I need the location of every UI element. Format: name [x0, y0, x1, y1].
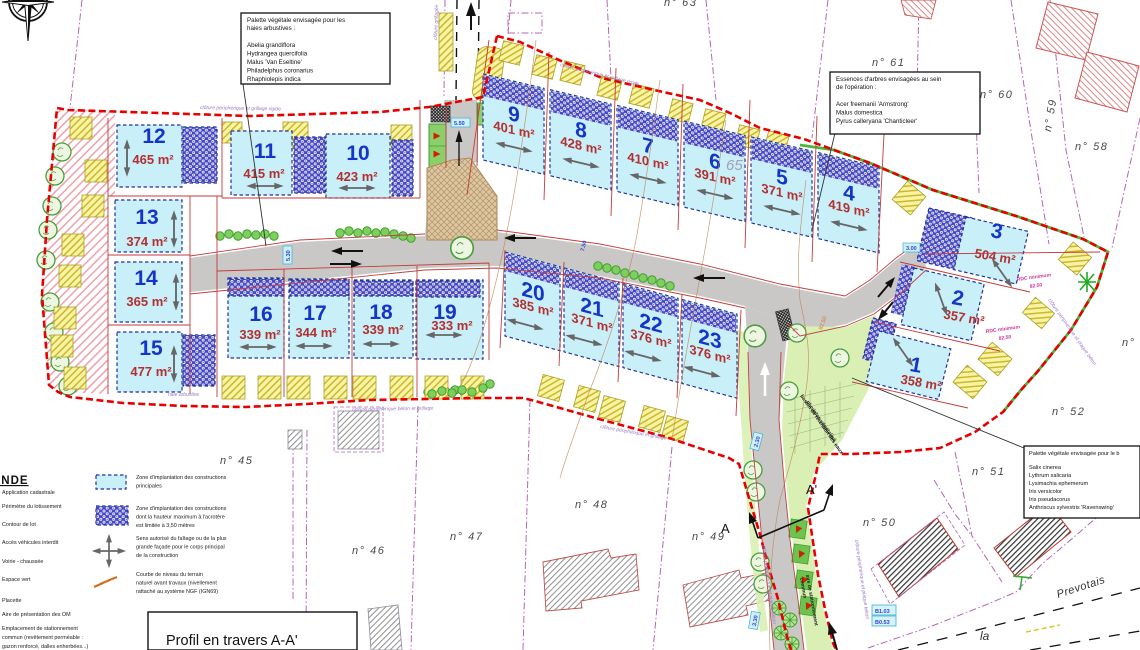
svg-text:est limitée à 3,50 mètres: est limitée à 3,50 mètres	[136, 523, 195, 529]
svg-text:17: 17	[303, 302, 326, 325]
svg-text:Acer freemanii 'Armstrong': Acer freemanii 'Armstrong'	[836, 101, 909, 108]
svg-text:Iris versicolor: Iris versicolor	[1029, 489, 1062, 495]
svg-text:415 m²: 415 m²	[243, 166, 285, 181]
svg-text:465 m²: 465 m²	[132, 152, 174, 167]
svg-text:n° 58: n° 58	[1075, 141, 1108, 153]
svg-text:Salix cinerea: Salix cinerea	[1029, 465, 1062, 471]
svg-text:Philadelphus coronarius: Philadelphus coronarius	[247, 68, 313, 75]
svg-text:Iris pseudacorus: Iris pseudacorus	[1029, 497, 1070, 503]
svg-text:333 m²: 333 m²	[431, 318, 473, 333]
svg-text:339 m²: 339 m²	[362, 322, 404, 337]
svg-text:haie arbustive: haie arbustive	[168, 392, 199, 398]
svg-text:naturel avant travaux (nivelle: naturel avant travaux (nivellement	[136, 581, 217, 587]
svg-text:n° 48: n° 48	[575, 499, 608, 511]
svg-text:423 m²: 423 m²	[336, 169, 378, 184]
svg-text:clôture grillagée: clôture grillagée	[433, 4, 440, 40]
svg-text:n° 50: n° 50	[863, 517, 896, 529]
svg-text:LEGENDE: LEGENDE	[0, 475, 29, 487]
svg-text:Abelia grandiflora: Abelia grandiflora	[247, 42, 296, 49]
svg-text:n° 61: n° 61	[872, 57, 905, 69]
svg-text:Malus domestica: Malus domestica	[836, 110, 883, 117]
svg-text:374 m²: 374 m²	[126, 234, 168, 249]
svg-text:11: 11	[254, 140, 277, 163]
svg-text:Anthriscus sylvestris 'Ravensw: Anthriscus sylvestris 'Ravenswing'	[1029, 505, 1114, 511]
svg-text:Accès véhicules interdit: Accès véhicules interdit	[2, 540, 59, 546]
svg-text:Malus 'Van Eseltine': Malus 'Van Eseltine'	[247, 59, 302, 66]
svg-text:14: 14	[134, 267, 158, 290]
svg-text:Placette: Placette	[2, 598, 21, 604]
svg-text:5.30: 5.30	[286, 250, 292, 261]
svg-text:n° 60: n° 60	[980, 89, 1013, 101]
svg-text:A: A	[721, 521, 730, 536]
svg-text:rattaché au système NGF (IGN69: rattaché au système NGF (IGN69)	[136, 589, 218, 595]
svg-text:Aire de présentation des OM: Aire de présentation des OM	[2, 612, 71, 618]
svg-text:Palette végétale envisagée pou: Palette végétale envisagée pour le b	[1029, 451, 1120, 457]
svg-text:n° 51: n° 51	[972, 466, 1005, 478]
svg-text:65: 65	[726, 157, 743, 174]
svg-text:Application cadastrale: Application cadastrale	[2, 490, 55, 496]
svg-text:Contour de lot: Contour de lot	[2, 522, 36, 528]
svg-text:principales: principales	[136, 484, 162, 490]
svg-text:n° 47: n° 47	[450, 531, 483, 543]
svg-text:dont la hauteur maximum à: dont la hauteur maximum à l'acrotère	[136, 515, 225, 521]
svg-text:Zone d'implantation des con: Zone d'implantation des constructions	[136, 506, 227, 512]
svg-text:12: 12	[142, 125, 165, 148]
svg-text:Courbe de niveau du te: Courbe de niveau du terrain	[136, 572, 203, 578]
svg-text:Lythrum salicaria: Lythrum salicaria	[1029, 473, 1072, 479]
svg-text:13: 13	[135, 206, 158, 229]
svg-text:Lysimachia ephemerum: Lysimachia ephemerum	[1029, 481, 1089, 487]
svg-text:n° 46: n° 46	[352, 545, 385, 557]
svg-text:10: 10	[346, 142, 369, 165]
svg-text:Sens autorisé du faîtage ou de: Sens autorisé du faîtage ou de la plus	[136, 536, 227, 542]
svg-text:Essences d'arbres envisagées a: Essences d'arbres envisagées au sein	[836, 76, 942, 83]
svg-text:Zone d'implantation des constr: Zone d'implantation des constructions	[136, 475, 227, 481]
svg-text:n° 52: n° 52	[1052, 406, 1085, 418]
svg-text:commun (revêtement perméable: commun (revêtement perméable :	[2, 635, 83, 641]
svg-text:B1.03: B1.03	[875, 609, 890, 615]
svg-text:de la construction: de la construction	[136, 553, 178, 559]
svg-text:n° 5: n° 5	[1122, 337, 1140, 349]
svg-text:365 m²: 365 m²	[126, 294, 168, 309]
svg-text:Périmètre du lotissement: Périmètre du lotissement	[2, 504, 62, 510]
svg-text:344 m²: 344 m²	[295, 325, 337, 340]
svg-text:15: 15	[139, 337, 163, 360]
svg-text:Voirie - chaussée: Voirie - chaussée	[2, 559, 43, 565]
svg-text:A': A'	[806, 482, 817, 497]
svg-text:grande façade pour le corps pr: grande façade pour le corps principal	[136, 545, 225, 551]
svg-text:n° 63: n° 63	[664, 0, 697, 9]
svg-text:5.50: 5.50	[454, 121, 465, 127]
svg-text:Profil en travers A-A': Profil en travers A-A'	[166, 633, 298, 649]
svg-text:18: 18	[369, 301, 393, 324]
svg-text:gazon renforcé, dalles enherbé: gazon renforcé, dalles enherbées...)	[2, 644, 89, 650]
svg-text:3.00: 3.00	[906, 246, 917, 252]
svg-text:n° 45: n° 45	[220, 455, 253, 467]
svg-text:Emplacement de stationne: Emplacement de stationnement	[2, 626, 78, 632]
svg-text:Espace vert: Espace vert	[2, 577, 31, 583]
svg-text:B0.53: B0.53	[875, 620, 890, 626]
svg-text:16: 16	[249, 303, 272, 326]
svg-text:Rhaphiolepis indica: Rhaphiolepis indica	[247, 76, 301, 83]
svg-text:Hydrangea quercifolia: Hydrangea quercifolia	[247, 51, 308, 58]
svg-text:de l'opération :: de l'opération :	[836, 84, 877, 91]
svg-text:la: la	[980, 629, 990, 643]
svg-text:477 m²: 477 m²	[130, 364, 172, 379]
svg-text:339 m²: 339 m²	[239, 327, 281, 342]
svg-text:Palette végétale envisagée pou: Palette végétale envisagée pour les	[247, 17, 345, 24]
svg-text:Pyrus calleryana 'Chanticleer': Pyrus calleryana 'Chanticleer'	[836, 118, 917, 125]
svg-text:haies arbustives :: haies arbustives :	[247, 25, 295, 32]
